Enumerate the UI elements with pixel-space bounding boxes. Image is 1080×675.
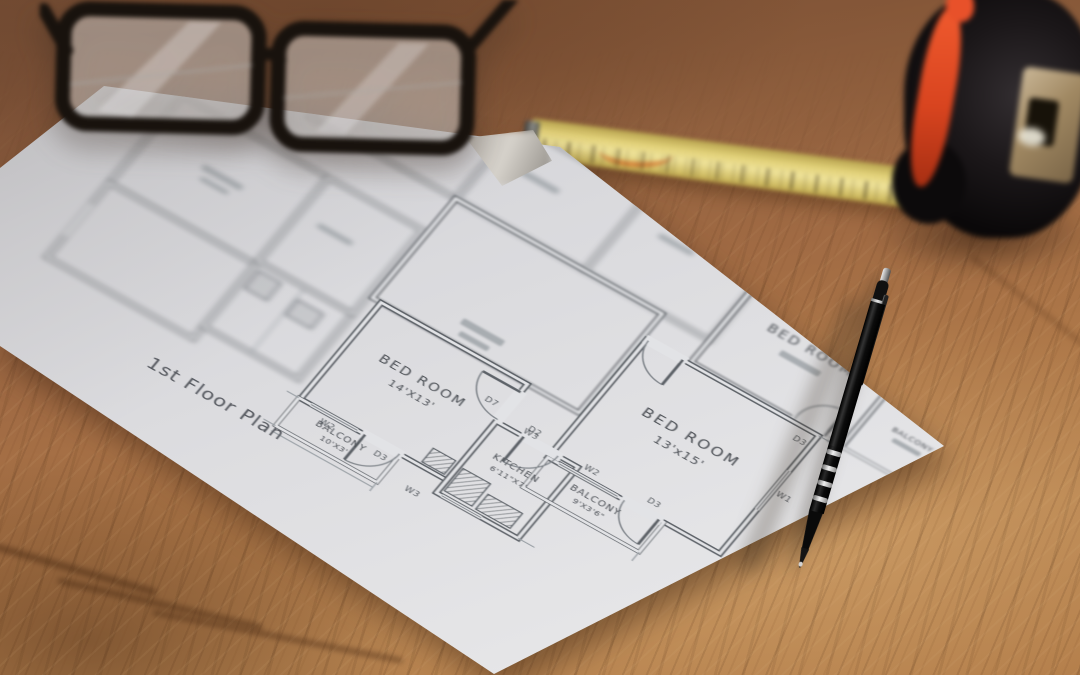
glasses-frame [40, 0, 514, 150]
tape-measure [888, 0, 1080, 264]
plan-title: 1st Floor Plan [142, 354, 289, 444]
glasses-bridge [256, 54, 282, 64]
mark-d7: D7 [482, 395, 500, 409]
mark-w3: W3 [402, 485, 422, 500]
photo-scene: BED ROOM BALCONY [0, 0, 1080, 675]
eyeglasses [36, 0, 540, 173]
glasses-right-temple [469, 0, 514, 50]
plan-near-rooms: BED ROOM 14'X13' KITCHEN 6'11"X7' BALCON… [142, 153, 840, 657]
pen-tip-glint [798, 561, 803, 567]
